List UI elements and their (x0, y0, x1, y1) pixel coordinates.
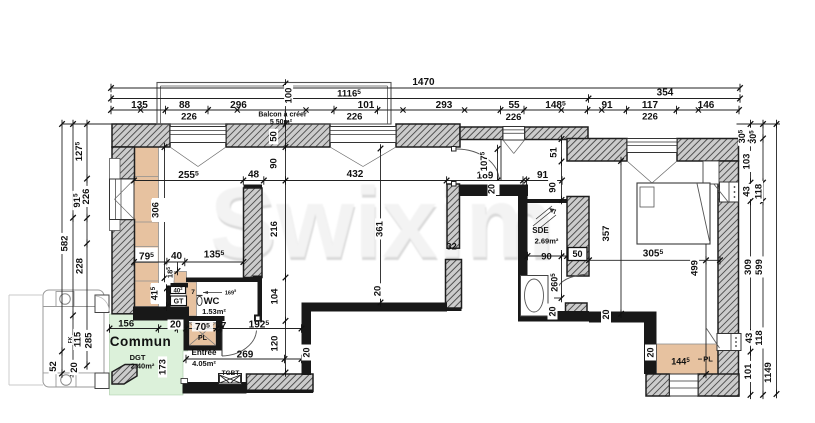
svg-text:226: 226 (506, 112, 522, 123)
svg-text:43: 43 (742, 186, 753, 197)
svg-text:91: 91 (601, 100, 613, 111)
svg-text:TGBT: TGBT (222, 370, 240, 377)
svg-text:50: 50 (572, 249, 582, 259)
svg-text:–: – (698, 355, 703, 364)
svg-text:306: 306 (151, 202, 162, 218)
svg-text:226: 226 (81, 189, 92, 205)
svg-text:52: 52 (48, 361, 59, 372)
svg-text:101: 101 (743, 363, 754, 380)
svg-text:101: 101 (358, 100, 375, 111)
svg-text:SDE: SDE (532, 226, 549, 235)
svg-text:20: 20 (373, 286, 384, 297)
svg-text:WC: WC (204, 296, 220, 307)
svg-text:296: 296 (230, 100, 247, 111)
svg-text:2.69m²: 2.69m² (535, 237, 559, 246)
svg-text:103: 103 (742, 154, 753, 170)
svg-text:1.53m²: 1.53m² (202, 307, 226, 316)
svg-text:146: 146 (698, 100, 715, 111)
svg-text:7: 7 (191, 289, 195, 296)
svg-text:55: 55 (508, 100, 520, 111)
svg-text:88: 88 (179, 100, 191, 111)
svg-text:226: 226 (642, 112, 658, 123)
svg-text:100: 100 (284, 88, 295, 104)
svg-text:269: 269 (237, 350, 254, 361)
svg-text:499: 499 (690, 260, 701, 276)
svg-text:90: 90 (541, 252, 552, 263)
svg-text:GT: GT (174, 299, 184, 306)
svg-text:20: 20 (302, 347, 312, 357)
svg-text:32: 32 (446, 242, 457, 253)
svg-text:216: 216 (269, 221, 280, 237)
svg-text:104: 104 (270, 288, 281, 305)
svg-text:PL: PL (703, 355, 713, 364)
svg-text:118: 118 (754, 184, 765, 199)
svg-text:FK: FK (68, 336, 74, 343)
svg-text:115: 115 (73, 331, 84, 347)
svg-text:90: 90 (269, 158, 280, 169)
svg-text:135: 135 (131, 100, 148, 111)
svg-text:118: 118 (754, 330, 765, 345)
svg-text:90: 90 (548, 182, 559, 193)
svg-text:117: 117 (642, 100, 659, 111)
svg-text:309: 309 (743, 259, 754, 275)
svg-text:2.40m²: 2.40m² (131, 362, 155, 371)
svg-text:361: 361 (375, 220, 386, 237)
svg-text:51: 51 (549, 147, 560, 158)
svg-text:20: 20 (170, 320, 182, 331)
svg-text:5 50m²: 5 50m² (270, 119, 293, 126)
svg-text:1149: 1149 (763, 362, 774, 383)
svg-text:173: 173 (158, 359, 169, 375)
svg-text:50: 50 (269, 131, 280, 142)
svg-text:156: 156 (118, 319, 134, 330)
svg-text:40: 40 (171, 251, 183, 262)
svg-text:20: 20 (646, 347, 656, 357)
svg-text:226: 226 (181, 112, 197, 123)
svg-text:285: 285 (84, 332, 95, 349)
svg-text:354: 354 (657, 88, 674, 99)
svg-text:Entrée: Entrée (192, 348, 217, 357)
svg-text:357: 357 (601, 226, 612, 242)
svg-text:120: 120 (270, 336, 281, 352)
svg-text:432: 432 (347, 169, 364, 180)
svg-text:7: 7 (553, 209, 557, 216)
svg-text:48: 48 (248, 170, 260, 181)
svg-text:293: 293 (436, 100, 453, 111)
svg-text:20: 20 (487, 184, 497, 194)
svg-text:20: 20 (69, 362, 80, 373)
svg-text:Balcon à créer: Balcon à créer (258, 112, 307, 119)
svg-text:91: 91 (537, 170, 549, 181)
svg-text:20: 20 (548, 306, 558, 316)
svg-text:20: 20 (601, 309, 611, 319)
svg-text:PL: PL (198, 335, 208, 342)
svg-text:4.05m²: 4.05m² (192, 359, 216, 368)
svg-text:1470: 1470 (412, 77, 435, 88)
svg-text:582: 582 (60, 236, 71, 252)
svg-text:599: 599 (754, 259, 765, 275)
svg-text:228: 228 (75, 258, 86, 274)
svg-text:226: 226 (347, 112, 363, 123)
svg-text:Commun: Commun (110, 334, 172, 349)
svg-text:7: 7 (221, 321, 227, 332)
